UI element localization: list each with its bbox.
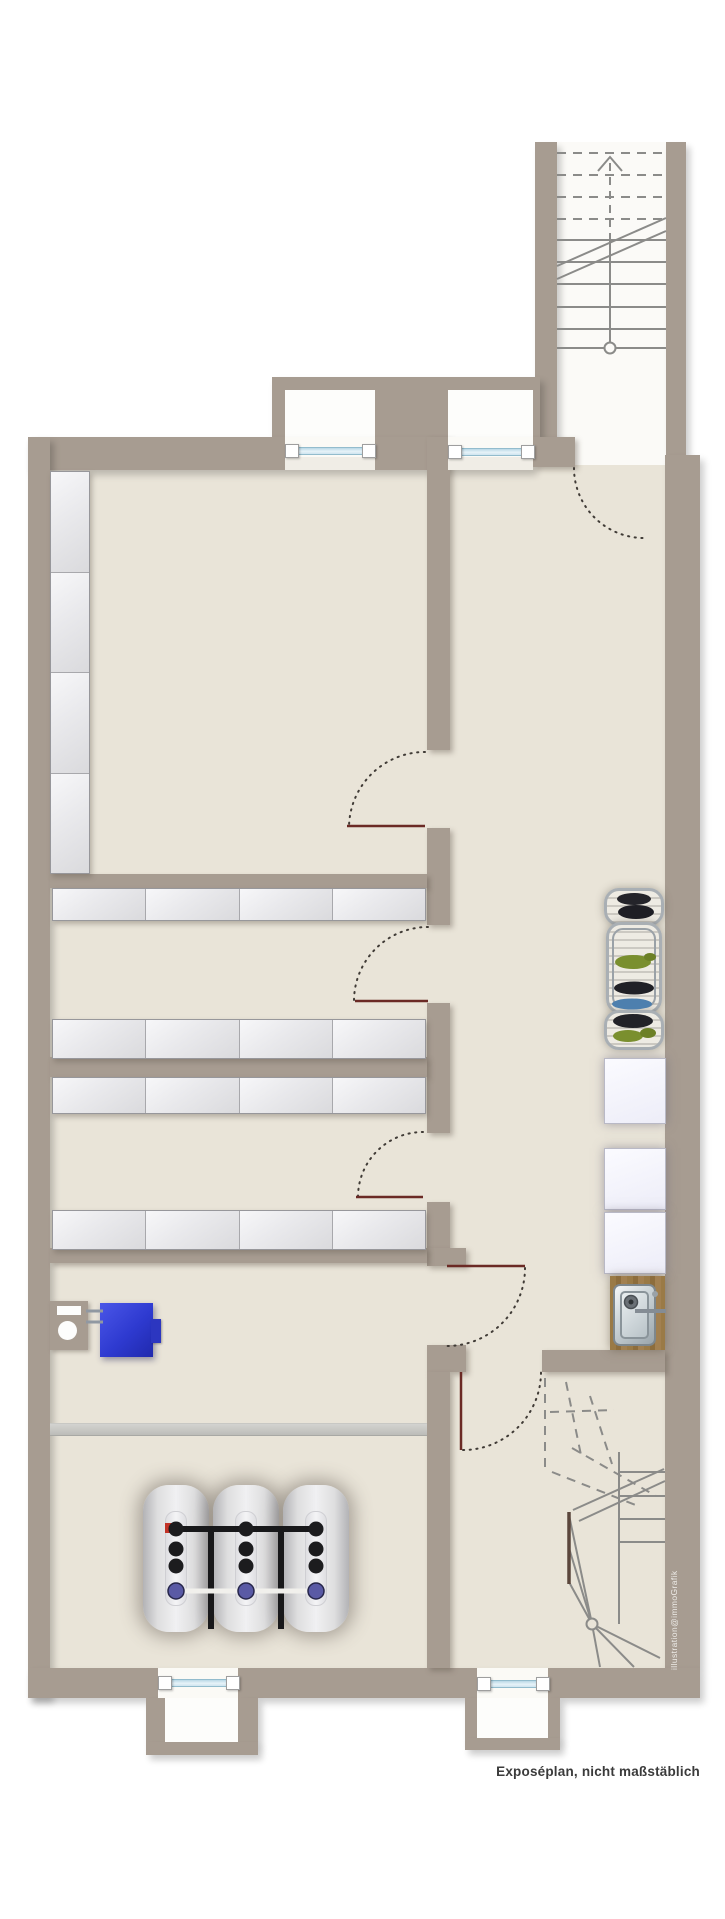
shelf-segment — [333, 1020, 425, 1058]
oil-tank-3 — [283, 1485, 349, 1632]
divider-wall-3 — [50, 1248, 427, 1263]
shelf-segment — [51, 673, 89, 774]
flue-wall-fixture — [50, 1301, 88, 1350]
upper-stair-hall-floor — [557, 142, 666, 470]
divider-wall-2 — [50, 1057, 427, 1077]
window-bottom-right — [488, 1680, 537, 1688]
floor-plan: illustration@immoGrafik Exposéplan, nich… — [0, 0, 725, 1919]
wall-left — [28, 437, 50, 1698]
shelf-unit-vertical — [50, 471, 90, 874]
top-light-well-left-shaft — [285, 390, 375, 437]
shelf-segment — [240, 1078, 333, 1113]
shelf-segment — [53, 1078, 146, 1113]
pipe-run-horizontal — [50, 1423, 427, 1436]
drying-rack-large — [606, 922, 662, 1014]
washing-machine-3 — [604, 1212, 666, 1274]
oil-tank-1 — [143, 1485, 209, 1632]
bottom-light-well-left-shaft — [165, 1698, 238, 1742]
middle-wall-segment-5 — [427, 1372, 450, 1668]
shelf-row-1 — [52, 888, 426, 921]
shelf-segment — [240, 1211, 333, 1249]
lower-stair-room-top-wall — [542, 1350, 665, 1372]
bottom-light-well-left-side — [238, 1698, 258, 1744]
wall-right — [665, 455, 700, 1668]
shelf-segment — [146, 1020, 239, 1058]
plan-caption: Exposéplan, nicht maßstäblich — [496, 1764, 700, 1779]
shelf-row-3 — [52, 1077, 426, 1114]
boiler-blue — [100, 1303, 153, 1357]
shelf-segment — [240, 889, 333, 920]
divider-wall-1 — [50, 874, 427, 888]
washing-machine-2 — [604, 1148, 666, 1210]
middle-wall-segment-4 — [427, 1202, 450, 1248]
fixture-flue-circle — [58, 1321, 77, 1340]
drying-rack-small-top — [604, 888, 664, 926]
shelf-segment — [333, 1211, 425, 1249]
middle-wall-segment-2 — [427, 828, 450, 925]
tank-channel — [235, 1511, 257, 1606]
middle-wall-stub-upper — [427, 1248, 466, 1266]
top-light-well-right-shaft — [448, 390, 533, 437]
shelf-row-2 — [52, 1019, 426, 1059]
window-frame-square — [226, 1676, 240, 1690]
sink-bowl — [613, 1284, 656, 1346]
window-frame-square — [521, 445, 535, 459]
shelf-segment — [146, 1078, 239, 1113]
bottom-light-well-right-side — [548, 1698, 560, 1740]
wall-bottom — [28, 1668, 700, 1698]
window-frame-square — [536, 1677, 550, 1691]
shelf-segment — [240, 1020, 333, 1058]
window-top-left-sill — [285, 457, 375, 470]
sink-basin — [620, 1291, 649, 1339]
window-frame-square — [448, 445, 462, 459]
shelf-segment — [146, 889, 239, 920]
bottom-light-well-right-side — [465, 1698, 477, 1740]
drying-rack-small-bottom — [604, 1010, 664, 1050]
shelf-segment — [53, 889, 146, 920]
shelf-segment — [333, 889, 425, 920]
bottom-light-well-left-side — [146, 1698, 165, 1744]
tank-channel — [165, 1511, 187, 1606]
window-frame-square — [477, 1677, 491, 1691]
shelf-segment — [51, 472, 89, 573]
tank-channel — [305, 1511, 327, 1606]
window-frame-square — [285, 444, 299, 458]
window-top-right — [459, 448, 523, 456]
window-frame-square — [362, 444, 376, 458]
bottom-light-well-right-bottom — [465, 1738, 560, 1750]
shelf-segment — [53, 1020, 146, 1058]
shelf-segment — [53, 1211, 146, 1249]
shelf-segment — [51, 573, 89, 674]
window-top-left — [296, 447, 364, 455]
bottom-light-well-left-bottom — [146, 1742, 258, 1755]
oil-tank-2 — [213, 1485, 279, 1632]
shelf-segment — [333, 1078, 425, 1113]
wall-top-block — [533, 437, 575, 467]
watermark-credit: illustration@immoGrafik — [669, 1550, 679, 1670]
shelf-segment — [146, 1211, 239, 1249]
upper-stair-wall-right — [666, 142, 686, 455]
boiler-side-tab — [151, 1319, 161, 1343]
shelf-segment — [51, 774, 89, 874]
fixture-vent-bar — [57, 1306, 81, 1315]
rack-inner-frame — [612, 928, 656, 1008]
shelf-row-4 — [52, 1210, 426, 1250]
middle-wall-segment-3 — [427, 1003, 450, 1133]
washing-machine-1 — [604, 1058, 666, 1124]
middle-wall-segment-1 — [427, 437, 450, 750]
middle-wall-stub-lower — [427, 1345, 466, 1372]
window-frame-square — [158, 1676, 172, 1690]
window-bottom-left — [169, 1679, 227, 1687]
bottom-light-well-right-shaft — [477, 1698, 548, 1738]
